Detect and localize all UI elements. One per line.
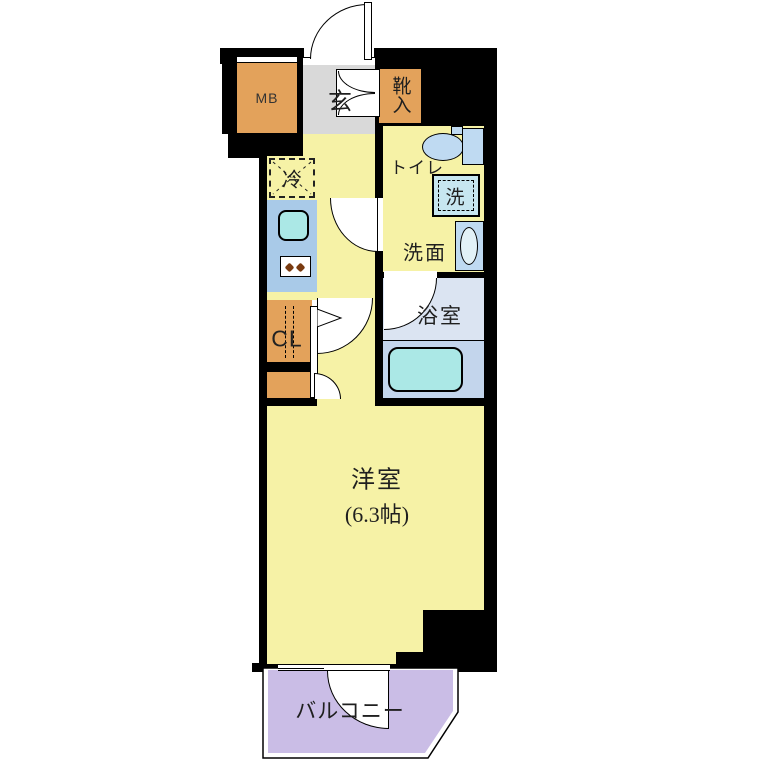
mb-window	[237, 56, 297, 63]
washbasin-unit	[455, 221, 484, 271]
closet-lower	[267, 372, 312, 398]
label-entrance: 玄	[328, 82, 354, 117]
label-meter-box: MB	[256, 90, 279, 106]
label-washing-machine: 洗	[445, 183, 466, 210]
closet-fold-triangle	[317, 308, 344, 329]
wall-mb-left	[222, 48, 238, 134]
room-window-mullion	[278, 668, 324, 669]
western-room-step2	[267, 652, 396, 664]
label-shoe-cabinet: 靴入	[387, 76, 414, 114]
toilet-tank	[462, 128, 484, 165]
entrance-door-arc	[310, 4, 368, 59]
wall-hall-toilet	[374, 126, 383, 200]
washbasin-bowl	[460, 227, 478, 265]
label-closet: CL	[271, 326, 302, 353]
western-room-step1	[267, 610, 423, 652]
wall-closet-bottom	[267, 397, 318, 406]
label-western-room-size: (6.3帖)	[345, 497, 409, 529]
balcony-door-sill	[324, 664, 390, 671]
floorplan-canvas: MB 玄 靴入 冷 トイレ 洗 洗面 浴室 CL 洋室 (6.3帖) バルコニー	[0, 0, 768, 768]
label-western-room: 洋室	[351, 460, 403, 495]
stove-burner	[296, 263, 306, 273]
bathtub	[388, 347, 463, 392]
label-toilet: トイレ	[390, 154, 444, 179]
wall-bath-bottom	[383, 398, 497, 406]
kitchen-sink	[278, 210, 309, 241]
wall-step-upper	[421, 608, 497, 668]
label-bathroom: 浴室	[417, 300, 463, 330]
wall-hall-bath	[374, 251, 383, 406]
label-washroom: 洗面	[403, 237, 447, 266]
stove-burner	[285, 263, 295, 273]
label-balcony: バルコニー	[295, 695, 405, 725]
room-window	[278, 664, 324, 671]
entrance-door-leaf	[364, 2, 372, 60]
wall-closet-divider	[267, 362, 313, 372]
stove	[280, 256, 311, 277]
label-refrigerator: 冷	[282, 164, 304, 193]
bathroom-doorway-gap	[384, 271, 437, 278]
